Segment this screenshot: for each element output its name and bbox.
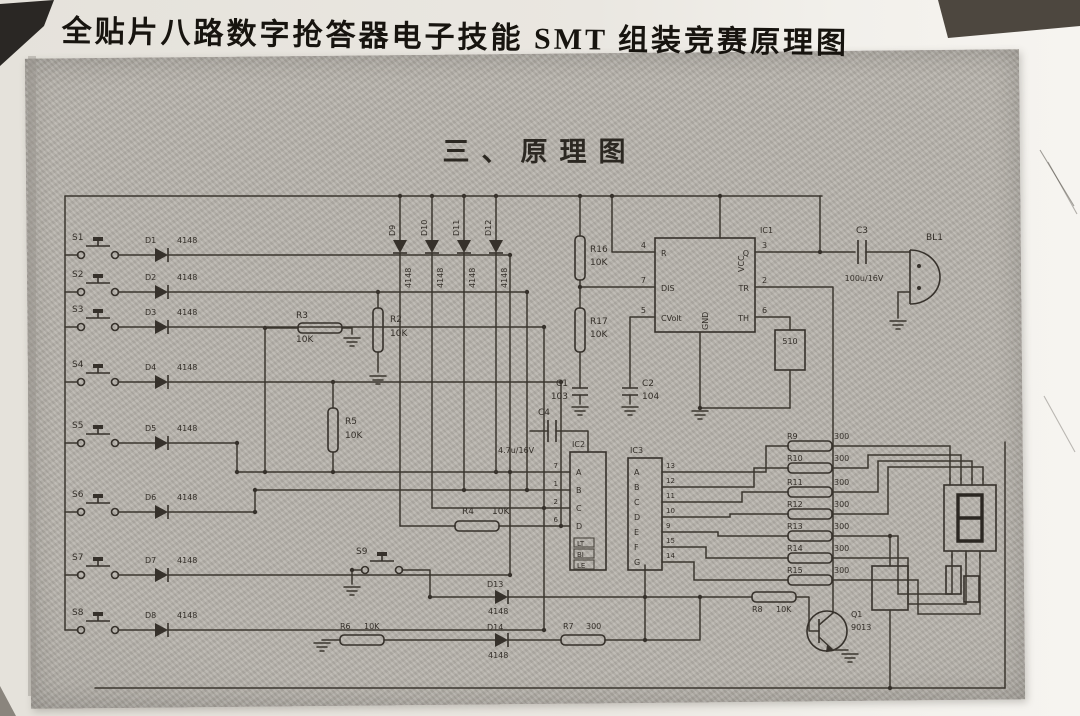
label-r13-val: 300 bbox=[834, 522, 849, 531]
label-ic1-pin5: 5 bbox=[641, 306, 646, 315]
wiring bbox=[65, 196, 1005, 688]
resistor-r8: R8 10K bbox=[752, 592, 819, 631]
label-r18-val: 510 bbox=[782, 337, 797, 346]
switch-diode-channels: S1D14148S2D24148S3D34148S4D44148S5D54148… bbox=[65, 233, 563, 637]
label-r10-ref: R10 bbox=[787, 454, 803, 463]
label-d11-val: 4148 bbox=[468, 268, 477, 288]
resistor-r2: R2 10K bbox=[370, 292, 408, 384]
label-r7-val: 300 bbox=[586, 622, 601, 631]
transistor-q1: Q1 9013 bbox=[807, 610, 871, 662]
label-s4: S4 bbox=[72, 360, 84, 370]
label-ic3-pin-14: 14 bbox=[666, 552, 675, 560]
label-r5-ref: R5 bbox=[345, 417, 357, 427]
label-ic3-pin-11: 11 bbox=[666, 492, 675, 500]
label-d2-ref: D2 bbox=[145, 273, 156, 282]
resistor-r18: 510 bbox=[775, 330, 805, 408]
left-edge-shadow bbox=[28, 56, 36, 696]
label-ic1-r: R bbox=[661, 249, 667, 258]
label-ic2-d-pin: 6 bbox=[554, 516, 559, 524]
label-ic3-pin-13: 13 bbox=[666, 462, 675, 470]
label-s7: S7 bbox=[72, 553, 83, 563]
display-aux-box bbox=[946, 566, 961, 594]
label-r5-val: 10K bbox=[345, 431, 363, 441]
label-r14-val: 300 bbox=[834, 544, 849, 553]
label-ic3-seg-g: G bbox=[634, 558, 640, 567]
channel-s5: S5D54148 bbox=[65, 421, 239, 450]
label-r2-val: 10K bbox=[390, 329, 408, 339]
label-ic3-pin-10: 10 bbox=[666, 507, 675, 515]
label-d10-ref: D10 bbox=[420, 220, 429, 236]
label-q1-part: 9013 bbox=[851, 623, 871, 632]
junction-dots bbox=[235, 194, 892, 690]
resistor-r7: R7 300 bbox=[561, 622, 605, 645]
label-ic3-seg-d: D bbox=[634, 513, 640, 522]
label-r7-ref: R7 bbox=[563, 622, 574, 631]
diode-d10: D104148 bbox=[420, 196, 445, 508]
circuit-schematic: R3 10K R2 10K R5 10K R4 10K IC1 4 7 5 R bbox=[0, 0, 1080, 716]
label-d3-val: 4148 bbox=[177, 308, 197, 317]
label-d8-ref: D8 bbox=[145, 611, 156, 620]
label-d7-ref: D7 bbox=[145, 556, 156, 565]
label-ic3-seg-c: C bbox=[634, 498, 640, 507]
label-ic1-pin7: 7 bbox=[641, 276, 646, 285]
label-c1-val: 103 bbox=[551, 392, 568, 402]
label-ic1-vcc: VCC bbox=[737, 255, 746, 272]
label-r16-ref: R16 bbox=[590, 245, 608, 255]
label-r14-ref: R14 bbox=[787, 544, 803, 553]
label-ic1-th: TH bbox=[737, 314, 749, 323]
diode-d9: D94148 bbox=[388, 196, 413, 526]
photographed-schematic-page: { "page": { "title": "全贴片八路数字抢答器电子技能 SMT… bbox=[0, 0, 1080, 716]
label-r10-val: 300 bbox=[834, 454, 849, 463]
label-s8: S8 bbox=[72, 608, 84, 618]
label-ic2-a-pin: 7 bbox=[554, 462, 558, 470]
label-ic2-c: C bbox=[576, 504, 582, 513]
label-ic2-le: LE bbox=[577, 562, 585, 570]
corner-shadow-top-right bbox=[938, 0, 1080, 38]
label-c4-ref: C4 bbox=[538, 408, 550, 418]
resistor-r12: D10R12300 bbox=[634, 467, 983, 522]
label-d12-val: 4148 bbox=[500, 268, 509, 288]
switch-s9: S9 bbox=[344, 547, 430, 597]
label-r12-ref: R12 bbox=[787, 500, 803, 509]
corner-shadow-top-left bbox=[0, 0, 54, 66]
label-d3-ref: D3 bbox=[145, 308, 156, 317]
label-ic1-pin6: 6 bbox=[762, 306, 767, 315]
label-ic1-pin3: 3 bbox=[762, 241, 767, 250]
resistor-r5: R5 10K bbox=[328, 382, 363, 472]
channel-s4: S4D44148 bbox=[65, 360, 563, 389]
diode-d11: D114148 bbox=[452, 196, 477, 490]
channel-s8: S8D84148 bbox=[65, 608, 546, 637]
label-ic1-pin2: 2 bbox=[762, 276, 767, 285]
label-ic2-c-pin: 2 bbox=[554, 498, 558, 506]
label-r16-val: 10K bbox=[590, 258, 608, 268]
label-d11-ref: D11 bbox=[452, 220, 461, 236]
label-r4-val: 10K bbox=[492, 507, 510, 517]
label-ic3-seg-a: A bbox=[634, 468, 640, 477]
label-ic2-b-pin: 1 bbox=[554, 480, 558, 488]
label-s6: S6 bbox=[72, 490, 84, 500]
resistor-r6: R6 10K bbox=[314, 622, 495, 651]
label-ic2-ref: IC2 bbox=[572, 440, 585, 449]
label-s3: S3 bbox=[72, 305, 83, 315]
label-ic1-cvolt: CVolt bbox=[661, 314, 682, 323]
resistor-r3: R3 10K bbox=[265, 311, 360, 472]
label-s2: S2 bbox=[72, 270, 83, 280]
label-bl1-ref: BL1 bbox=[926, 233, 943, 243]
aux-box bbox=[872, 536, 908, 688]
label-r9-val: 300 bbox=[834, 432, 849, 441]
label-r3-ref: R3 bbox=[296, 311, 308, 321]
label-r15-val: 300 bbox=[834, 566, 849, 575]
label-r9-ref: R9 bbox=[787, 432, 798, 441]
diode-d12: D124148 bbox=[484, 196, 509, 472]
label-c2-ref: C2 bbox=[642, 379, 654, 389]
label-d7-val: 4148 bbox=[177, 556, 197, 565]
label-ic2-bi: BI bbox=[577, 551, 584, 559]
label-r15-ref: R15 bbox=[787, 566, 803, 575]
channel-s7: S7D74148 bbox=[65, 553, 512, 582]
capacitor-c2: C2 104 bbox=[622, 379, 659, 415]
resistor-r11: C11R11300 bbox=[634, 461, 972, 507]
label-ic2-d: D bbox=[576, 522, 582, 531]
label-d14-val: 4148 bbox=[488, 651, 508, 660]
label-q1-ref: Q1 bbox=[851, 610, 862, 619]
label-ic1-ref: IC1 bbox=[760, 226, 773, 235]
resistor-r4: R4 10K bbox=[455, 507, 510, 531]
label-d6-ref: D6 bbox=[145, 493, 156, 502]
label-d10-val: 4148 bbox=[436, 268, 445, 288]
label-d9-val: 4148 bbox=[404, 268, 413, 288]
label-d13-val: 4148 bbox=[488, 607, 508, 616]
label-c2-val: 104 bbox=[642, 392, 659, 402]
label-ic3-seg-f: F bbox=[634, 543, 639, 552]
timer-ic1-555: IC1 4 7 5 R DIS CVolt Q TR TH 3 2 6 VCC … bbox=[580, 196, 855, 613]
label-ic1-gnd: GND bbox=[701, 312, 710, 330]
label-c3-ref: C3 bbox=[856, 226, 868, 236]
pencil-mark bbox=[1048, 162, 1077, 214]
channel-s2: S2D24148 bbox=[65, 270, 529, 299]
label-ic2-lt: LT bbox=[577, 540, 585, 548]
speaker-bl1: BL1 bbox=[890, 233, 943, 329]
label-r17-val: 10K bbox=[590, 330, 608, 340]
label-r11-val: 300 bbox=[834, 478, 849, 487]
label-c3-val: 100u/16V bbox=[845, 274, 884, 283]
label-r17-ref: R17 bbox=[590, 317, 608, 327]
capacitor-c3: C3 100u/16V bbox=[845, 226, 910, 283]
label-ic1-pin4: 4 bbox=[641, 241, 646, 250]
label-r4-ref: R4 bbox=[462, 507, 474, 517]
label-c4-val: 4.7u/16V bbox=[498, 446, 535, 455]
channel-s1: S1D14148 bbox=[65, 233, 512, 262]
label-r8-ref: R8 bbox=[752, 605, 763, 614]
segment-resistors: A13R9300B12R10300C11R11300D10R12300E9R13… bbox=[634, 432, 983, 614]
capacitor-c1: C1 103 bbox=[551, 379, 588, 415]
label-ic3-seg-b: B bbox=[634, 483, 640, 492]
label-d5-ref: D5 bbox=[145, 424, 156, 433]
label-d2-val: 4148 bbox=[177, 273, 197, 282]
label-d9-ref: D9 bbox=[388, 225, 397, 236]
channel-s6: S6D64148 bbox=[65, 490, 257, 519]
label-r3-val: 10K bbox=[296, 335, 314, 345]
label-ic3-ref: IC3 bbox=[630, 446, 643, 455]
label-d4-ref: D4 bbox=[145, 363, 156, 372]
label-s9: S9 bbox=[356, 547, 368, 557]
label-d8-val: 4148 bbox=[177, 611, 197, 620]
label-r8-val: 10K bbox=[776, 605, 792, 614]
label-ic3-pin-12: 12 bbox=[666, 477, 675, 485]
label-ic1-tr: TR bbox=[738, 284, 750, 293]
label-ic2-a: A bbox=[576, 468, 582, 477]
label-s5: S5 bbox=[72, 421, 83, 431]
label-ic3-pin-9: 9 bbox=[666, 522, 670, 530]
label-d12-ref: D12 bbox=[484, 220, 493, 236]
label-ic2-b: B bbox=[576, 486, 582, 495]
label-d1-val: 4148 bbox=[177, 236, 197, 245]
label-d1-ref: D1 bbox=[145, 236, 156, 245]
label-d4-val: 4148 bbox=[177, 363, 197, 372]
corner-shadow-bottom-left bbox=[0, 686, 16, 716]
label-s1: S1 bbox=[72, 233, 83, 243]
label-ic3-pin-15: 15 bbox=[666, 537, 675, 545]
resistor-r16: R16 10K R17 10K bbox=[575, 196, 608, 388]
pencil-mark bbox=[1044, 396, 1075, 452]
label-ic3-seg-e: E bbox=[634, 528, 639, 537]
label-d13-ref: D13 bbox=[487, 580, 503, 589]
diode-d13: D13 4148 bbox=[430, 580, 752, 616]
label-r13-ref: R13 bbox=[787, 522, 803, 531]
label-r12-val: 300 bbox=[834, 500, 849, 509]
label-d5-val: 4148 bbox=[177, 424, 197, 433]
label-d6-val: 4148 bbox=[177, 493, 197, 502]
label-ic1-dis: DIS bbox=[661, 284, 675, 293]
label-r11-ref: R11 bbox=[787, 478, 803, 487]
top-diode-group: D94148D104148D114148D124148 bbox=[388, 196, 509, 526]
